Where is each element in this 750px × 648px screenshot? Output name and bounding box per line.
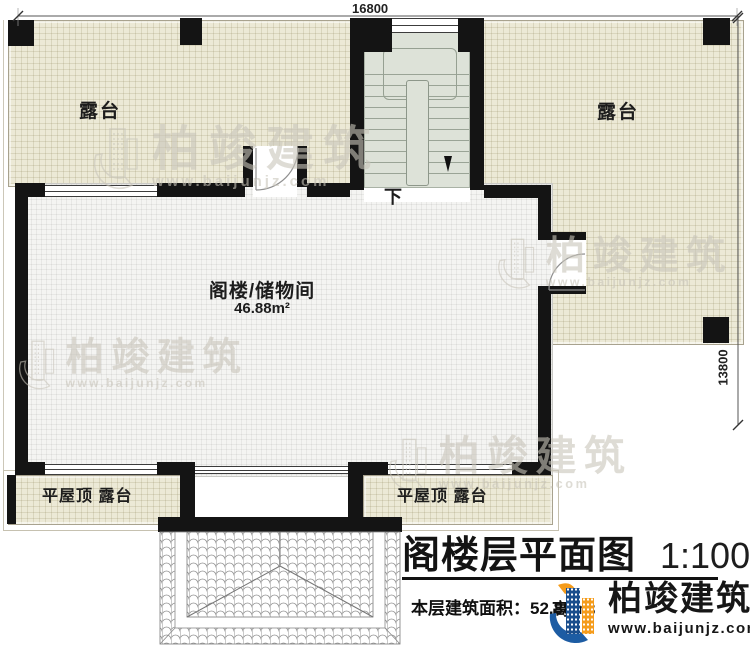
watermark-logo-icon (16, 338, 58, 391)
company-logo: 柏竣建筑 www.baijunjz.com (542, 582, 750, 646)
left-extension-line (3, 20, 4, 530)
tiled-roof (158, 517, 402, 644)
wall-bottom-b (157, 462, 195, 475)
wall-bottom-c (348, 462, 388, 475)
watermark: 柏竣建筑 www.baijunjz.com (495, 236, 733, 290)
watermark-company: 柏竣建筑 (152, 125, 380, 175)
company-name: 柏竣建筑 (608, 582, 750, 618)
window-bottom-left (45, 464, 157, 475)
watermark-company: 柏竣建筑 (546, 236, 733, 277)
column-top-mid (180, 18, 202, 45)
label-flat-roof-terrace-left: 平屋顶 露台 (42, 482, 202, 506)
stairwell-wall-left-top (350, 18, 392, 52)
label-stairs-down: 下 (378, 183, 408, 209)
dimension-right: 13800 (716, 345, 731, 391)
watermark: 柏竣建筑 www.baijunjz.com (90, 125, 380, 191)
attic-room-floor (15, 183, 553, 477)
window-stair-top (392, 18, 458, 33)
watermark-logo-icon (495, 236, 538, 290)
column-top-right (703, 18, 730, 45)
wall-top-corner (15, 183, 45, 197)
label-terrace-top-left: 露台 (60, 96, 140, 123)
window-bottom-mid (195, 466, 348, 474)
watermark-company: 柏竣建筑 (66, 338, 248, 378)
drawing-scale: 1:100 (660, 535, 750, 577)
company-website: www.baijunjz.com (608, 620, 750, 637)
watermark-company: 柏竣建筑 (439, 436, 633, 479)
wall-bottom-corner (15, 462, 45, 475)
stair-handrail (406, 80, 429, 186)
drawing-title: 阁楼层平面图 (402, 524, 636, 579)
drawing-title-row: 阁楼层平面图 1:100 (402, 524, 750, 579)
wall-roof-post-right (348, 475, 363, 519)
label-attic-area: 46.88m² (152, 300, 372, 317)
column-top-left (8, 20, 34, 46)
wall-left (15, 183, 28, 475)
dimension-top: 16800 (352, 1, 388, 16)
watermark: 柏竣建筑 www.baijunjz.com (16, 338, 248, 391)
stair-direction-arrow (444, 156, 452, 172)
column-right-mid (703, 317, 729, 343)
company-logo-icon (542, 582, 604, 646)
terrace-bl-end-wall (7, 475, 16, 524)
label-flat-roof-terrace-right: 平屋顶 露台 (397, 482, 557, 506)
label-attic-name: 阁楼/储物间 (152, 276, 372, 303)
floor-plan-canvas: 柏竣建筑 www.baijunjz.com 柏竣建筑 www.baijunjz.… (0, 0, 750, 648)
watermark-logo-icon (90, 125, 142, 191)
stairwell-wall-right-top (458, 18, 484, 52)
label-terrace-top-right: 露台 (578, 97, 658, 124)
